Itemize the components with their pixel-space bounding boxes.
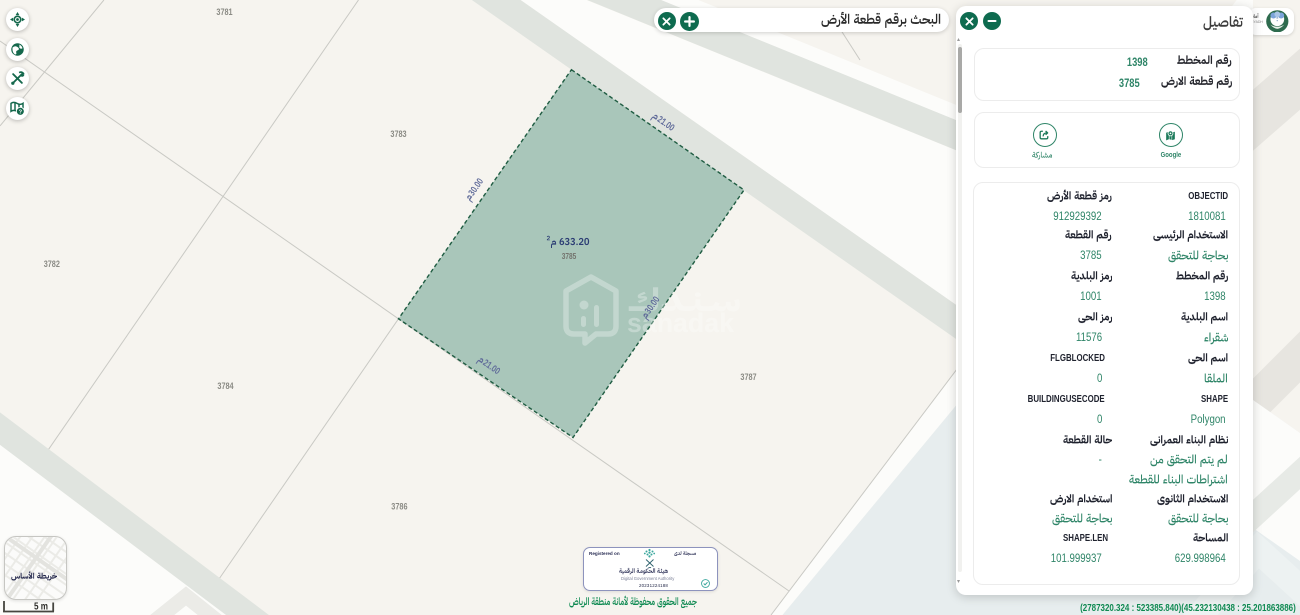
svg-text:3787: 3787 [740, 372, 756, 382]
svg-text:3782: 3782 [44, 259, 60, 269]
svg-text:sanadak: sanadak [627, 308, 735, 338]
svg-text:?: ? [19, 109, 23, 115]
svg-text:3781: 3781 [216, 7, 232, 17]
svg-text:3783: 3783 [390, 129, 406, 139]
svg-text:5 m: 5 m [34, 602, 48, 613]
svg-text:3784: 3784 [217, 381, 233, 391]
svg-text:3786: 3786 [391, 502, 407, 512]
svg-text:3785: 3785 [562, 251, 577, 261]
